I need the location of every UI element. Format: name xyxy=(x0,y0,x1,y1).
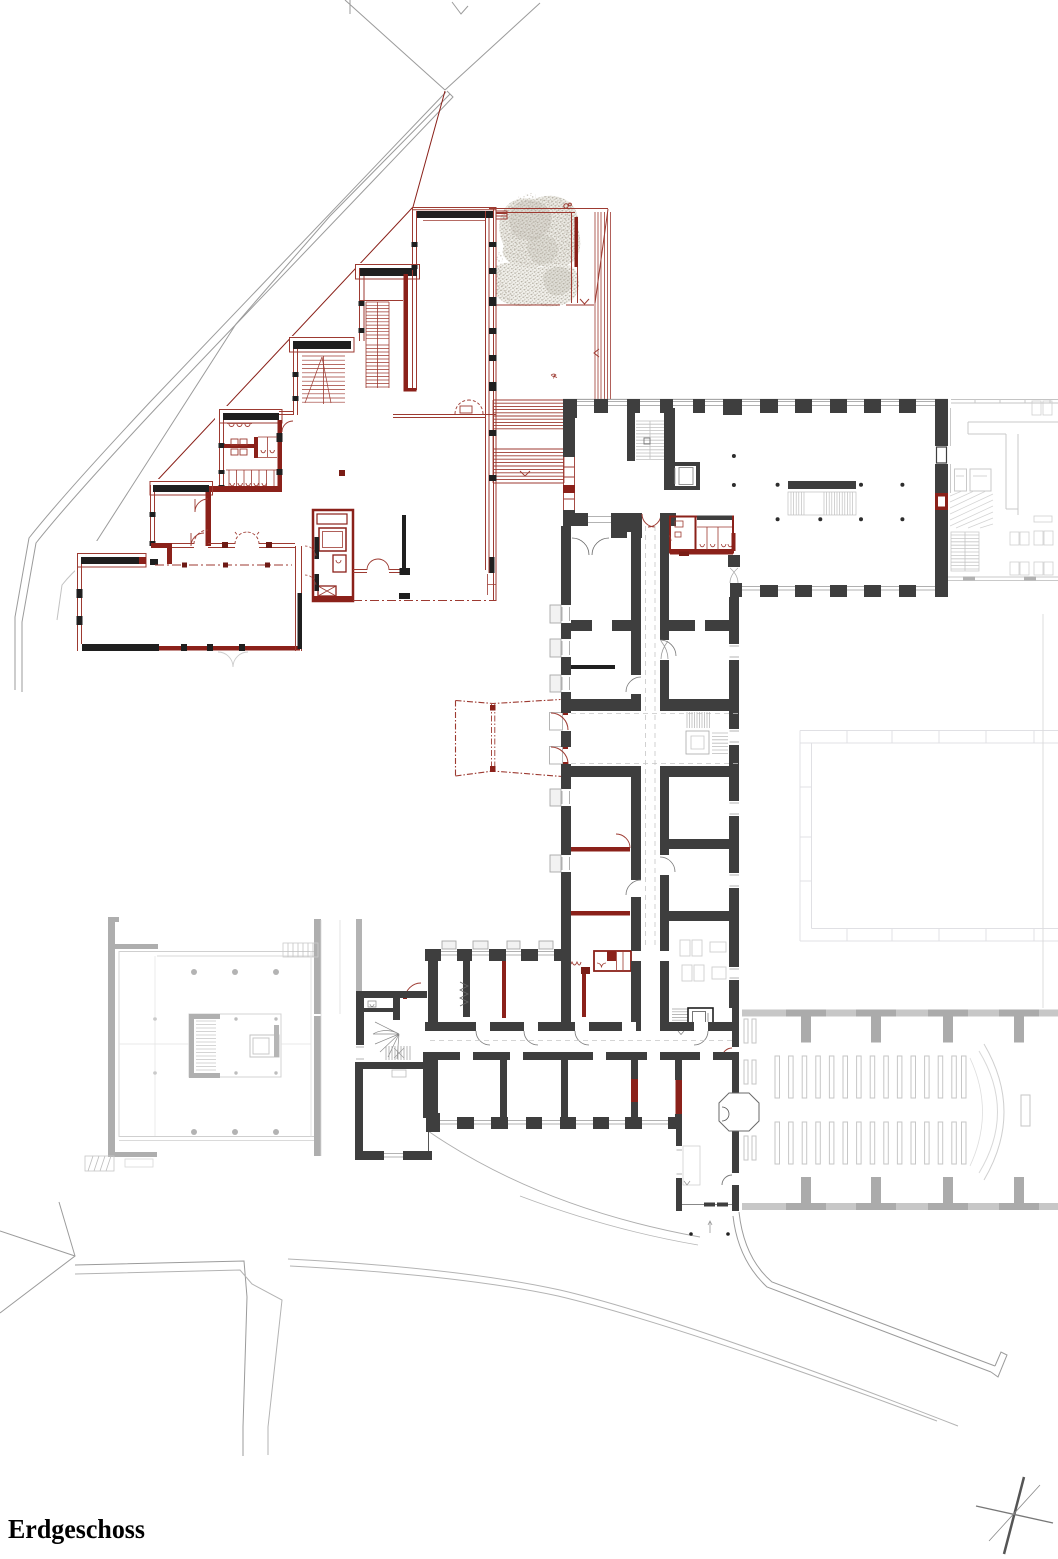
svg-text:Erdgeschoss: Erdgeschoss xyxy=(8,1513,145,1544)
